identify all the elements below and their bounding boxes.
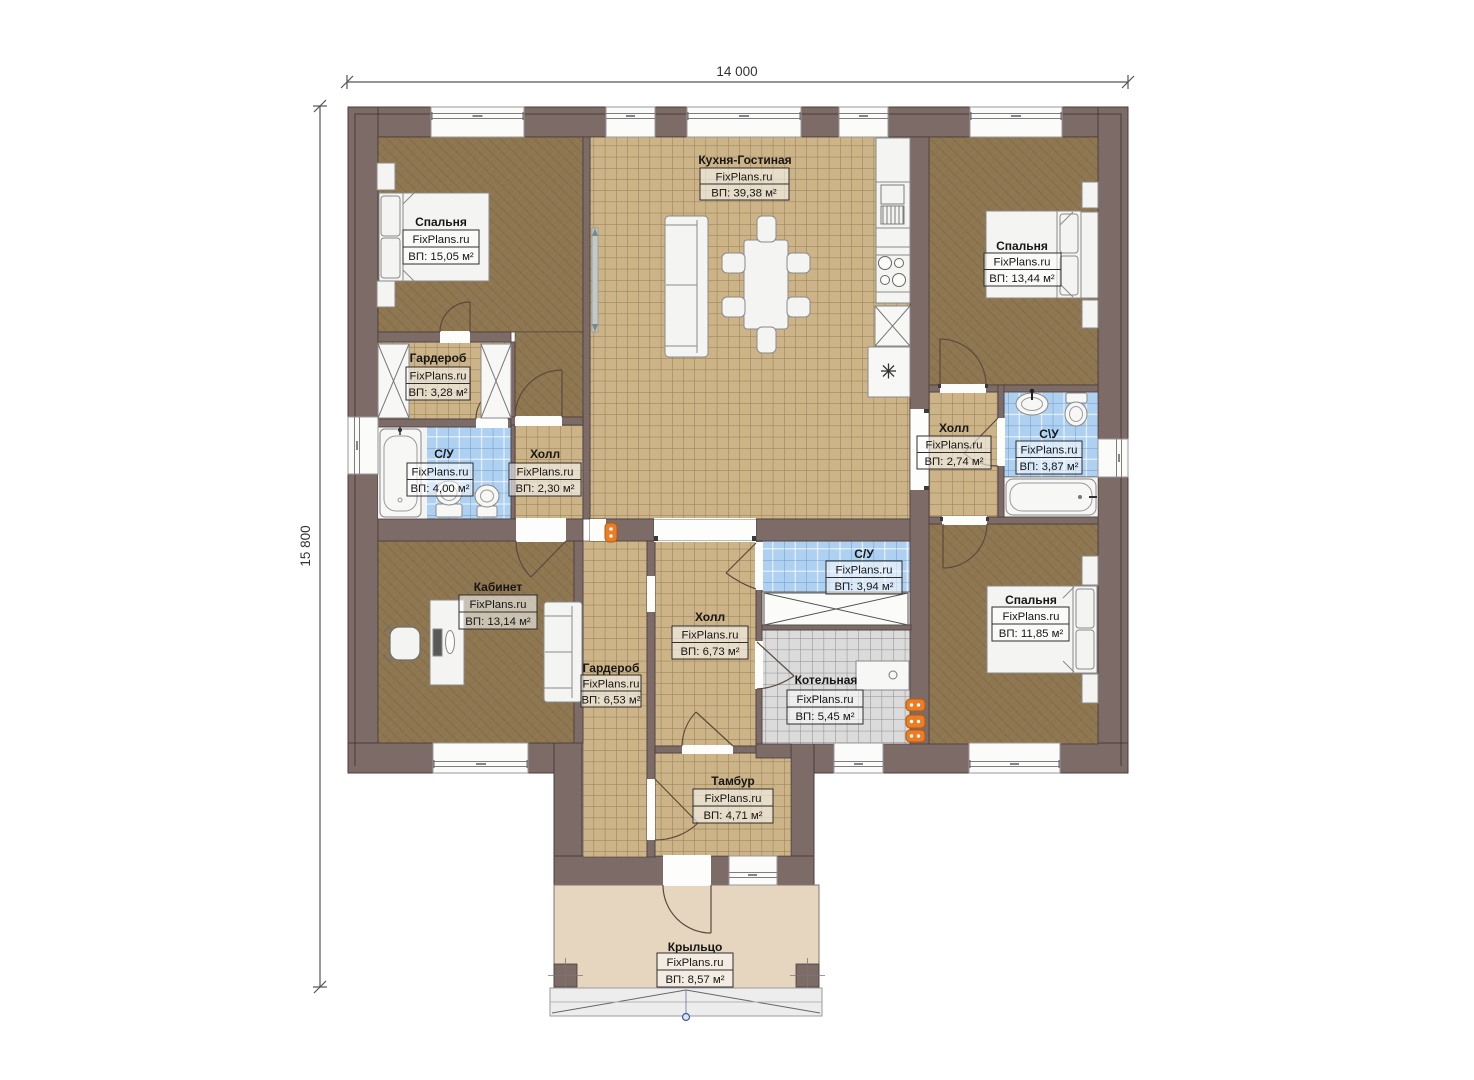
svg-text:ВП: 11,85 м²: ВП: 11,85 м² <box>999 628 1064 640</box>
svg-text:Спальня: Спальня <box>996 239 1048 253</box>
svg-text:ВП: 3,94 м²: ВП: 3,94 м² <box>834 581 893 593</box>
svg-text:Котельная: Котельная <box>795 673 858 687</box>
svg-text:ВП: 39,38 м²: ВП: 39,38 м² <box>711 188 777 200</box>
svg-text:FixPlans.ru: FixPlans.ru <box>705 793 762 805</box>
svg-text:FixPlans.ru: FixPlans.ru <box>667 957 724 969</box>
svg-text:ВП: 4,00 м²: ВП: 4,00 м² <box>410 483 469 495</box>
svg-text:Крыльцо: Крыльцо <box>668 940 723 954</box>
svg-text:ВП: 6,53 м²: ВП: 6,53 м² <box>581 695 640 707</box>
svg-text:FixPlans.ru: FixPlans.ru <box>517 467 574 479</box>
svg-text:Гардероб: Гардероб <box>583 661 640 675</box>
svg-text:FixPlans.ru: FixPlans.ru <box>583 679 640 691</box>
svg-text:ВП: 5,45 м²: ВП: 5,45 м² <box>795 711 854 723</box>
svg-text:С\У: С\У <box>1039 427 1059 441</box>
svg-text:Гардероб: Гардероб <box>410 351 467 365</box>
svg-text:FixPlans.ru: FixPlans.ru <box>716 172 773 184</box>
svg-text:Тамбур: Тамбур <box>711 774 755 788</box>
svg-text:С/У: С/У <box>854 547 874 561</box>
svg-text:FixPlans.ru: FixPlans.ru <box>797 694 854 706</box>
svg-text:ВП: 13,44 м²: ВП: 13,44 м² <box>989 273 1055 285</box>
svg-text:Спальня: Спальня <box>1005 593 1057 607</box>
svg-text:Кухня-Гостиная: Кухня-Гостиная <box>698 153 791 167</box>
svg-text:FixPlans.ru: FixPlans.ru <box>470 599 527 611</box>
svg-text:ВП: 8,57 м²: ВП: 8,57 м² <box>665 974 724 986</box>
svg-text:FixPlans.ru: FixPlans.ru <box>1021 445 1078 457</box>
svg-text:ВП: 2,74 м²: ВП: 2,74 м² <box>924 456 983 468</box>
svg-text:15 800: 15 800 <box>298 525 313 566</box>
svg-text:Холл: Холл <box>695 610 725 624</box>
svg-text:FixPlans.ru: FixPlans.ru <box>926 440 983 452</box>
svg-text:ВП: 3,87 м²: ВП: 3,87 м² <box>1019 461 1078 473</box>
svg-text:Холл: Холл <box>530 447 560 461</box>
svg-text:14 000: 14 000 <box>716 64 757 79</box>
svg-text:FixPlans.ru: FixPlans.ru <box>410 371 467 383</box>
svg-text:FixPlans.ru: FixPlans.ru <box>412 467 469 479</box>
svg-text:ВП: 3,28 м²: ВП: 3,28 м² <box>408 387 467 399</box>
svg-text:С/У: С/У <box>434 447 454 461</box>
svg-text:FixPlans.ru: FixPlans.ru <box>682 630 739 642</box>
svg-text:FixPlans.ru: FixPlans.ru <box>994 257 1051 269</box>
svg-text:FixPlans.ru: FixPlans.ru <box>413 234 470 246</box>
svg-text:ВП: 15,05 м²: ВП: 15,05 м² <box>408 251 474 263</box>
svg-text:Кабинет: Кабинет <box>474 580 523 594</box>
svg-text:FixPlans.ru: FixPlans.ru <box>836 565 893 577</box>
svg-text:ВП: 6,73 м²: ВП: 6,73 м² <box>680 646 739 658</box>
svg-text:ВП: 13,14 м²: ВП: 13,14 м² <box>465 616 531 628</box>
svg-text:Холл: Холл <box>939 421 969 435</box>
svg-text:Спальня: Спальня <box>415 215 467 229</box>
svg-text:FixPlans.ru: FixPlans.ru <box>1003 611 1060 623</box>
svg-text:ВП: 4,71 м²: ВП: 4,71 м² <box>703 810 762 822</box>
svg-text:ВП: 2,30 м²: ВП: 2,30 м² <box>515 483 574 495</box>
